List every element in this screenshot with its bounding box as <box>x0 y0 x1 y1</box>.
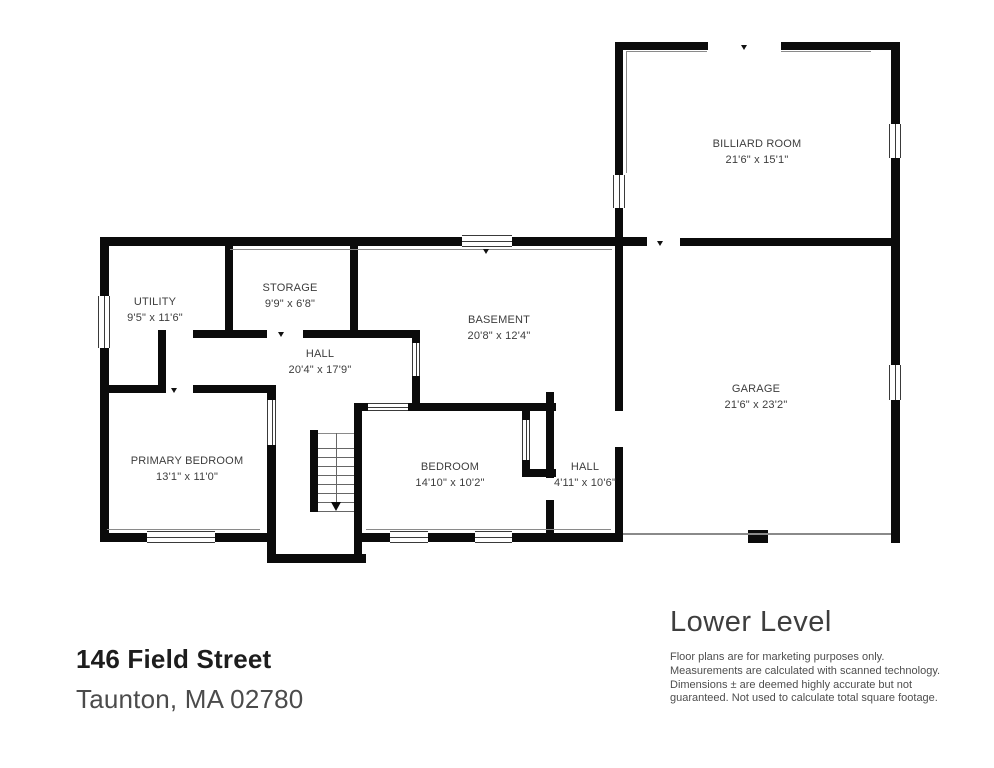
address-line-2: Taunton, MA 02780 <box>76 684 303 715</box>
garage-door-opening-line <box>623 533 891 535</box>
opening-marker <box>483 249 489 254</box>
room-label-garage: GARAGE 21'6" x 23'2" <box>686 382 826 413</box>
level-title: Lower Level <box>670 606 960 639</box>
wall-bedroom-north-2 <box>408 403 556 411</box>
wall-face-line <box>627 51 707 52</box>
room-dims: 21'6" x 15'1" <box>657 153 857 169</box>
room-dims: 13'1" x 11'0" <box>97 470 277 486</box>
room-name: HALL <box>535 460 635 476</box>
wall-face-line <box>107 529 260 530</box>
opening-marker <box>171 388 177 393</box>
room-dims: 14'10" x 10'2" <box>380 476 520 492</box>
room-name: PRIMARY BEDROOM <box>97 454 277 470</box>
wall-exterior-top <box>100 237 647 246</box>
door-gap-hall-garage <box>614 411 624 447</box>
room-name: GARAGE <box>686 382 826 398</box>
wall-face-line <box>781 51 871 52</box>
room-name: BEDROOM <box>380 460 520 476</box>
room-name: BASEMENT <box>429 313 569 329</box>
room-dims: 9'9" x 6'8" <box>220 297 360 313</box>
wall-face-line <box>626 51 627 173</box>
address-line-1: 146 Field Street <box>76 644 303 675</box>
door-primary-bedroom-east <box>267 400 276 445</box>
window-garage-right <box>889 365 901 400</box>
door-closet <box>522 420 530 460</box>
wall-billiard-garage-divider <box>680 238 891 246</box>
opening-marker <box>741 45 747 50</box>
wall-utility-south <box>100 385 158 393</box>
wall-hall-north-1 <box>193 330 267 338</box>
wall-hall-north-2 <box>303 330 420 338</box>
room-label-storage: STORAGE 9'9" x 6'8" <box>220 281 360 312</box>
window-primary-bedroom-2 <box>181 531 215 543</box>
room-name: UTILITY <box>85 295 225 311</box>
opening-marker <box>278 332 284 337</box>
room-dims: 9'5" x 11'6" <box>85 311 225 327</box>
window-primary-bedroom-1 <box>147 531 181 543</box>
window-billiard-right <box>889 124 901 158</box>
stair-down-arrow-icon <box>331 502 341 511</box>
window-basement-top <box>462 235 512 247</box>
wall-primary-bedroom-north <box>193 385 276 393</box>
floor-plan-page: BILLIARD ROOM 21'6" x 15'1" UTILITY 9'5"… <box>0 0 994 768</box>
disclaimer-line: guaranteed. Not used to calculate total … <box>670 692 960 706</box>
room-name: STORAGE <box>220 281 360 297</box>
room-label-utility: UTILITY 9'5" x 11'6" <box>85 295 225 326</box>
room-dims: 21'6" x 23'2" <box>686 398 826 414</box>
room-label-bedroom: BEDROOM 14'10" x 10'2" <box>380 460 520 491</box>
wall-billiard-top-left <box>615 42 708 50</box>
wall-billiard-top-right <box>781 42 900 50</box>
room-name: BILLIARD ROOM <box>657 137 857 153</box>
wall-hall-west <box>158 330 166 393</box>
level-info: Lower Level Floor plans are for marketin… <box>670 606 960 706</box>
disclaimer-line: Measurements are calculated with scanned… <box>670 665 960 679</box>
wall-face-line <box>230 249 612 250</box>
wall-stairwell-bottom <box>267 554 366 563</box>
wall-stair-left <box>310 430 318 512</box>
window-bedroom-1 <box>390 531 428 543</box>
room-dims: 4'11" x 10'6" <box>535 476 635 492</box>
wall-face-line <box>366 529 611 530</box>
disclaimer-line: Dimensions ± are deemed highly accurate … <box>670 679 960 693</box>
stair-direction-line <box>336 433 337 503</box>
room-dims: 20'4" x 17'9" <box>250 363 390 379</box>
room-label-billiard-room: BILLIARD ROOM 21'6" x 15'1" <box>657 137 857 168</box>
room-label-hall-small: HALL 4'11" x 10'6" <box>535 460 635 491</box>
opening-marker <box>657 241 663 246</box>
disclaimer: Floor plans are for marketing purposes o… <box>670 651 960 706</box>
room-label-hall: HALL 20'4" x 17'9" <box>250 347 390 378</box>
room-label-basement: BASEMENT 20'8" x 12'4" <box>429 313 569 344</box>
property-address: 146 Field Street Taunton, MA 02780 <box>76 644 303 715</box>
opening-bedroom-north <box>368 403 408 411</box>
window-billiard-left <box>613 175 625 208</box>
room-dims: 20'8" x 12'4" <box>429 329 569 345</box>
wall-exterior-right <box>891 42 900 543</box>
disclaimer-line: Floor plans are for marketing purposes o… <box>670 651 960 665</box>
room-label-primary-bedroom: PRIMARY BEDROOM 13'1" x 11'0" <box>97 454 277 485</box>
room-name: HALL <box>250 347 390 363</box>
wall-garage-door-post <box>748 530 768 543</box>
opening-hall-basement <box>412 343 420 376</box>
wall-billiard-garage-divider-left <box>623 238 647 246</box>
window-bedroom-2 <box>475 531 512 543</box>
stair-tread <box>318 511 354 512</box>
wall-bedroom-west <box>354 403 362 563</box>
